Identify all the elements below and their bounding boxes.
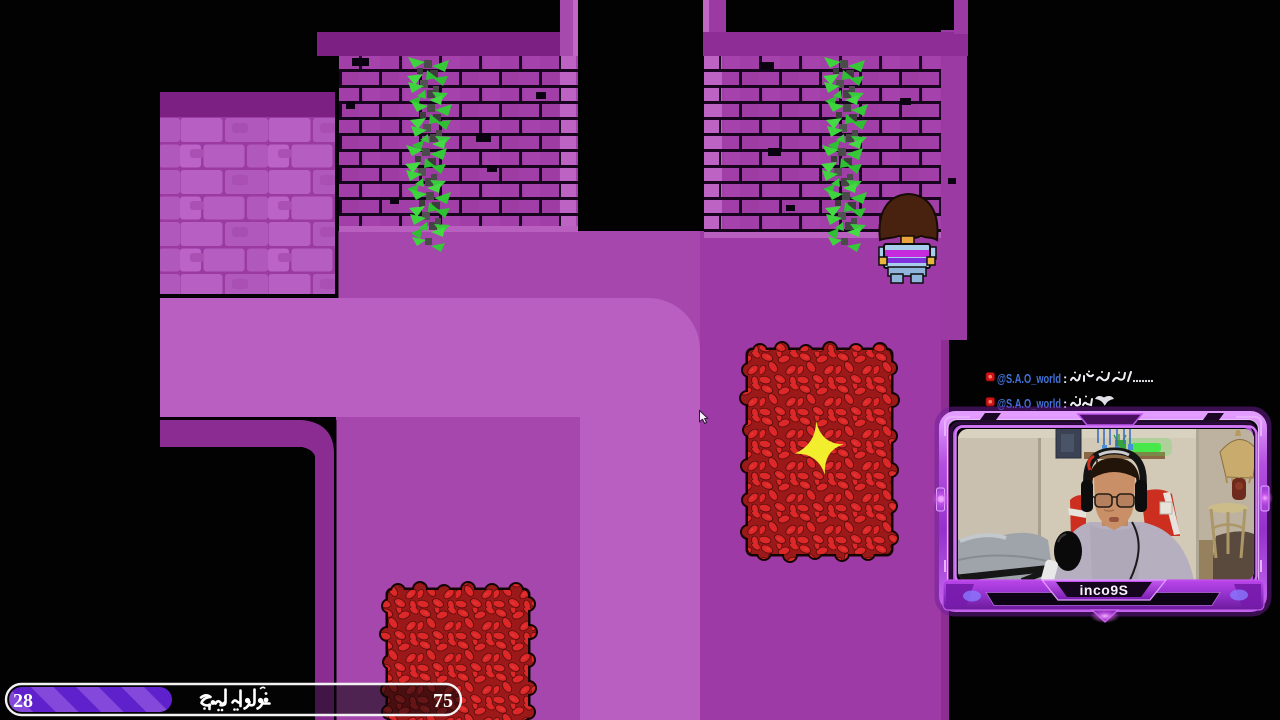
- svg-text:inco9S: inco9S: [1080, 582, 1129, 598]
- svg-text::: :: [1063, 371, 1067, 386]
- svg-text:@S.A.O_world: @S.A.O_world: [997, 371, 1061, 386]
- svg-text:75: 75: [433, 690, 453, 712]
- svg-text:28: 28: [13, 690, 33, 712]
